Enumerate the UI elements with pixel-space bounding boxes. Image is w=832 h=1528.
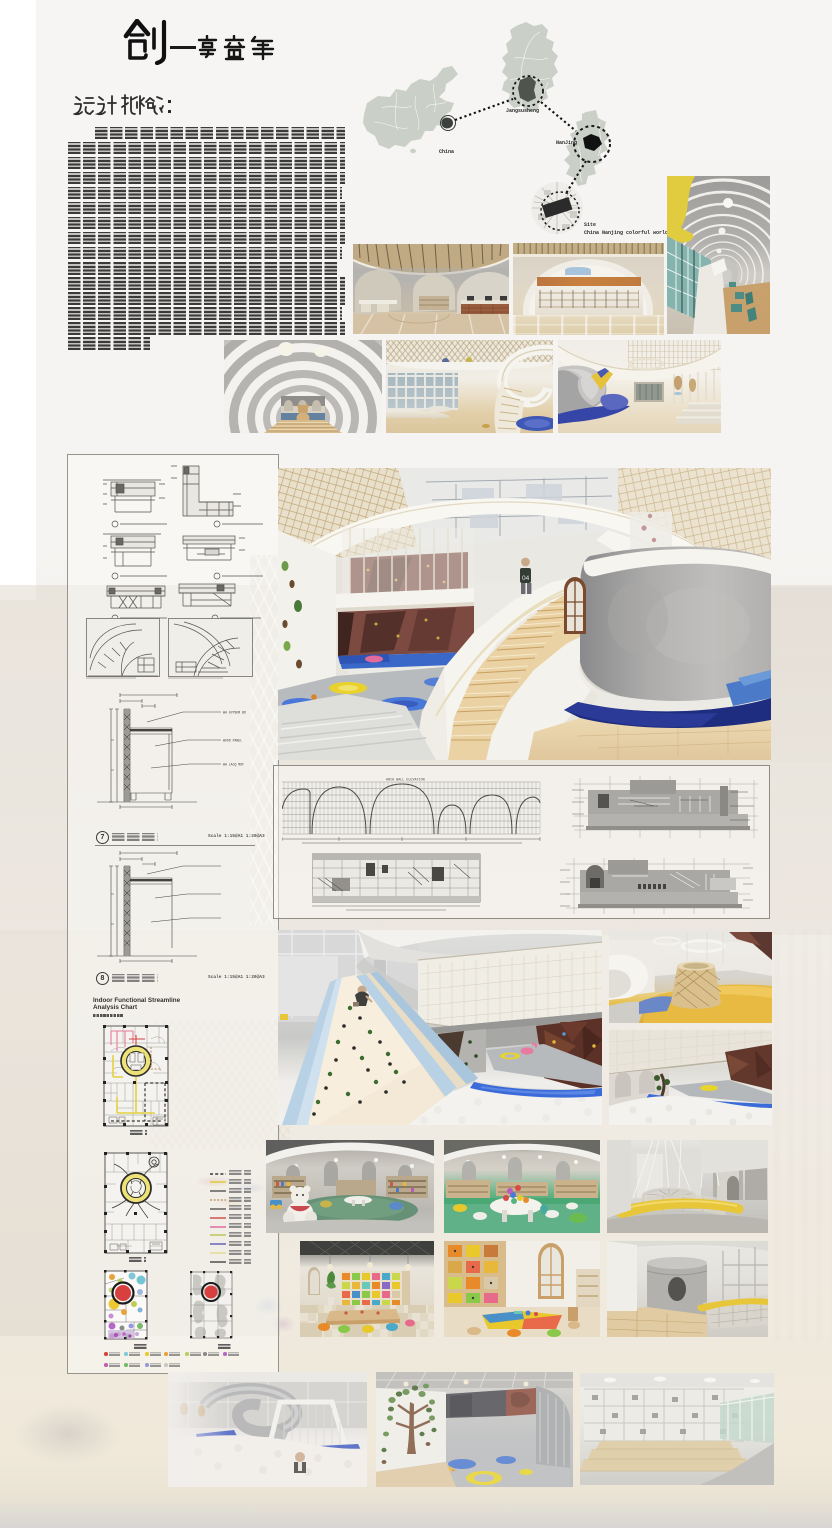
svg-text:WH GYPSUM BD: WH GYPSUM BD: [223, 711, 246, 715]
svg-text:04: 04: [522, 575, 530, 582]
svg-text:WH LACQ MDF: WH LACQ MDF: [223, 763, 244, 767]
svg-text:WOOD PANEL: WOOD PANEL: [223, 739, 242, 743]
svg-text:ARCH WALL ELEVATION: ARCH WALL ELEVATION: [386, 779, 425, 783]
